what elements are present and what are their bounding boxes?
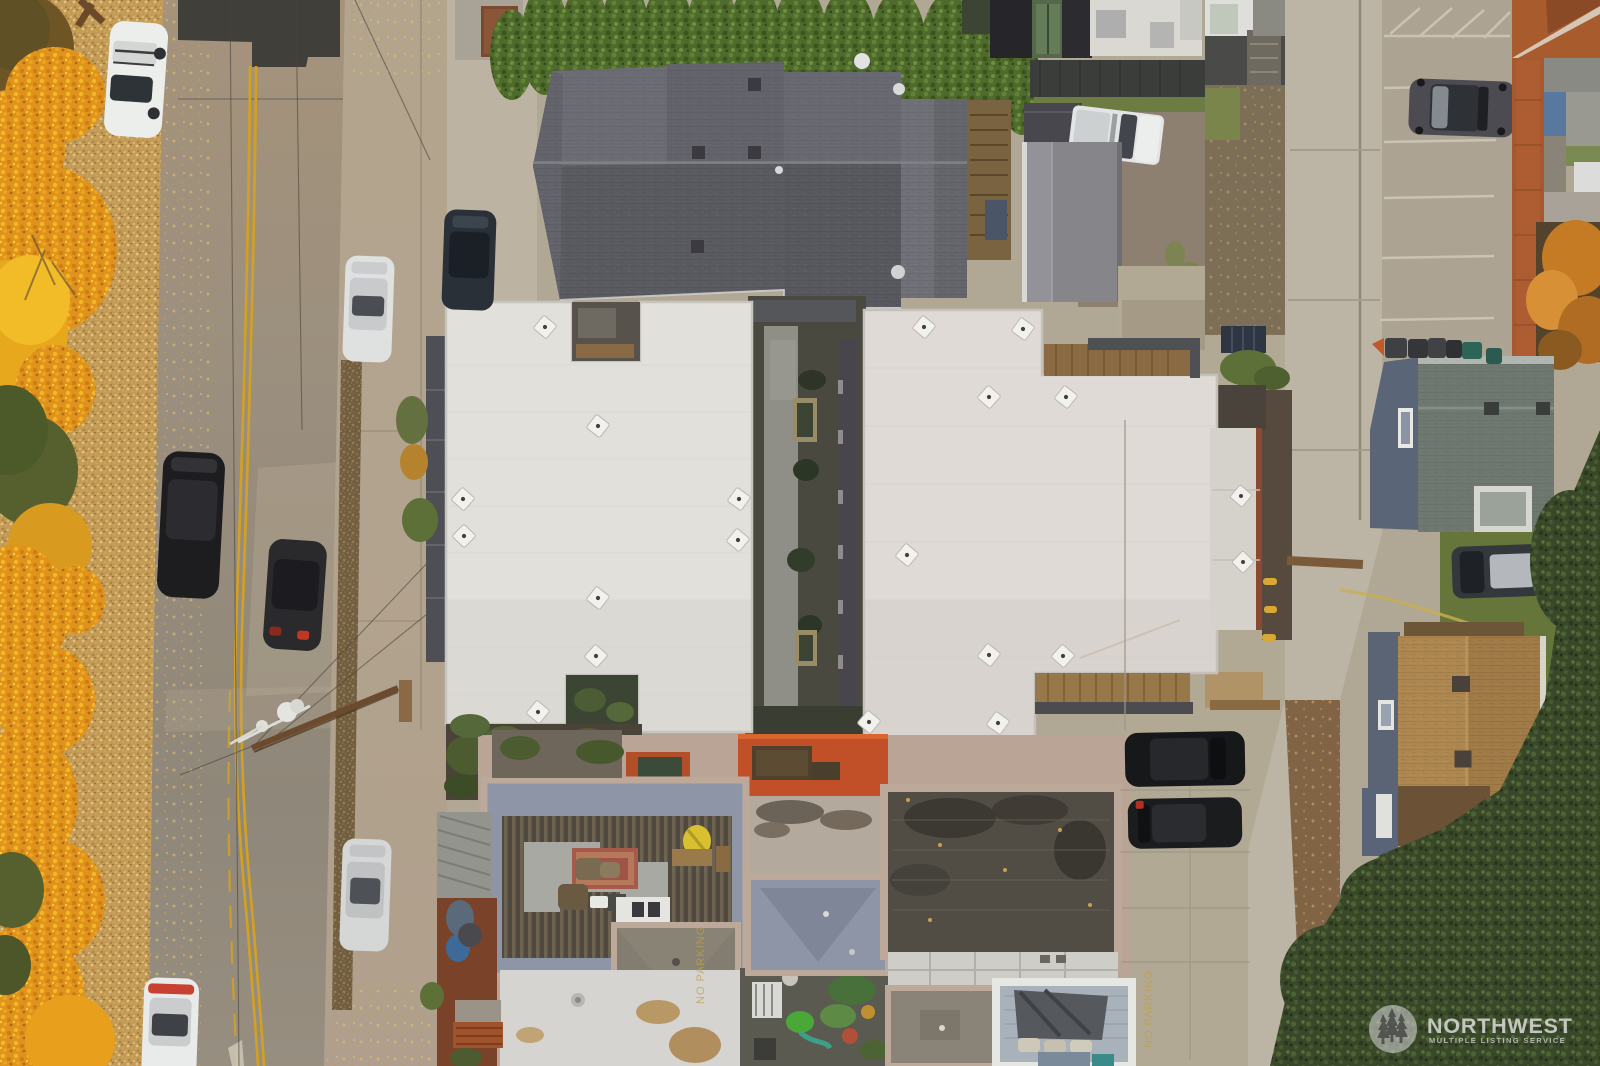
svg-text:MULTIPLE LISTING SERVICE: MULTIPLE LISTING SERVICE [1429, 1036, 1566, 1045]
svg-text:NO PARKING: NO PARKING [1143, 970, 1155, 1048]
svg-text:NO PARKING: NO PARKING [695, 926, 707, 1004]
svg-text:NORTHWEST: NORTHWEST [1427, 1014, 1573, 1038]
